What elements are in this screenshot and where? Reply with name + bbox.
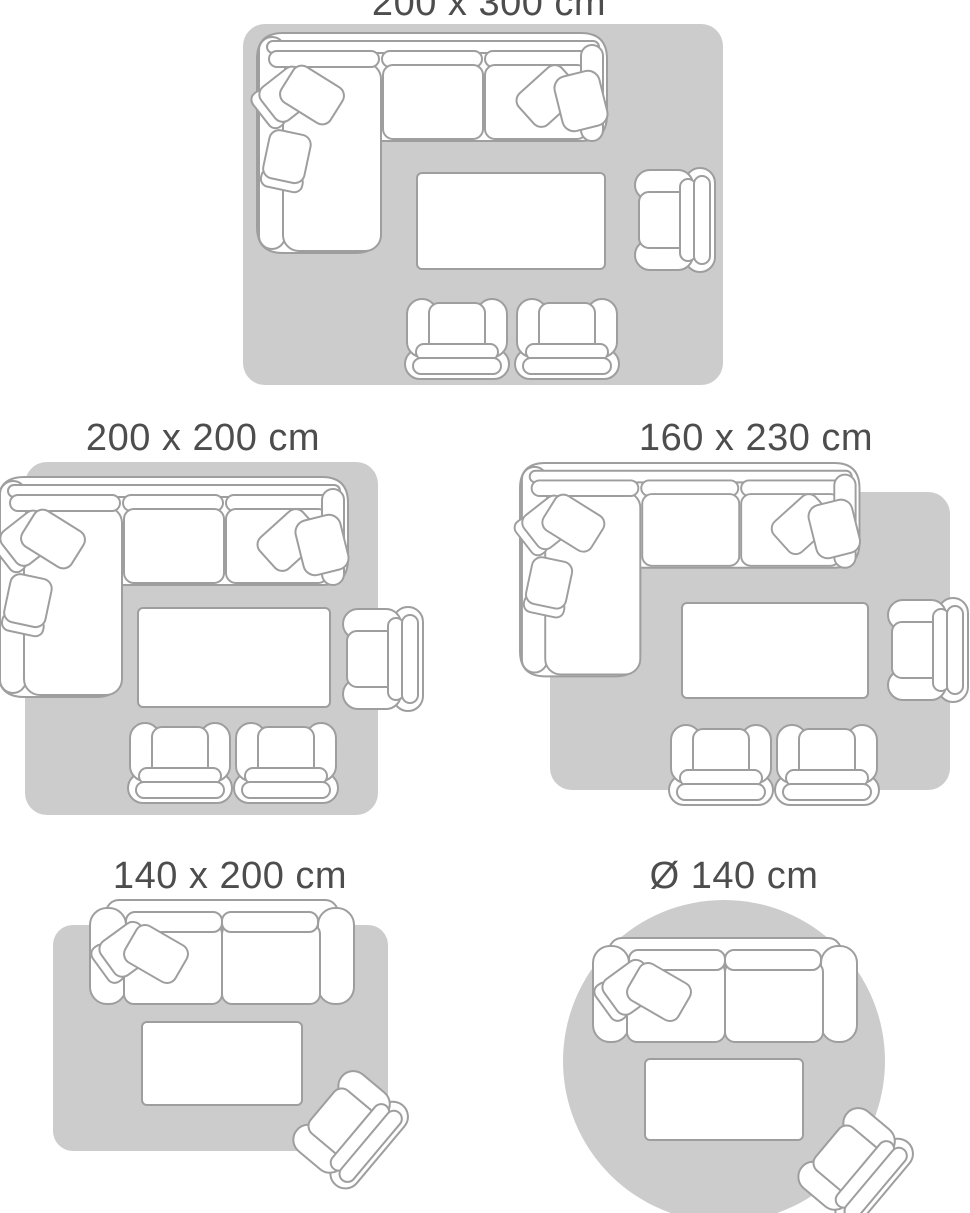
scene-200x200 [0,462,423,815]
armchair-icon [343,607,423,711]
sofa-icon [591,938,857,1042]
rug-size-guide: 200 x 300 cm 200 x 200 cm 160 x 230 cm 1… [0,0,970,1213]
armchair-icon [405,299,509,379]
armchair-icon [775,725,879,805]
armchair-icon [888,598,968,702]
coffee-table-icon [645,1059,803,1140]
rug-layout-canvas [0,0,970,1213]
scene-140x200 [53,900,414,1195]
coffee-table-icon [142,1022,302,1105]
armchair-icon [515,299,619,379]
sofa-icon [88,900,354,1004]
scene-200x300 [243,24,723,385]
scene-round-140 [563,900,919,1213]
coffee-table-icon [138,608,330,707]
armchair-icon [128,723,232,803]
coffee-table-icon [682,603,868,698]
armchair-icon [635,168,715,272]
armchair-icon [234,723,338,803]
coffee-table-icon [417,173,605,269]
armchair-icon [669,725,773,805]
scene-160x230 [511,463,968,805]
